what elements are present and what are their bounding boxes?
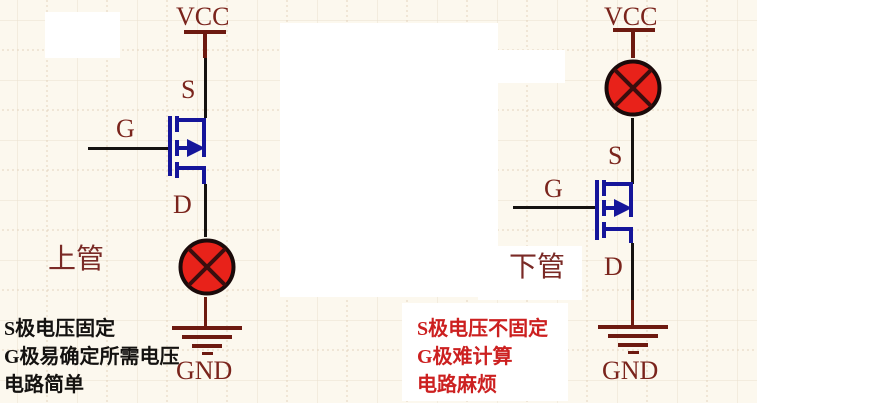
source-wire xyxy=(631,118,634,184)
ground-wire xyxy=(204,297,207,326)
gate-pin-label: G xyxy=(544,176,563,202)
ground-bar xyxy=(202,352,213,355)
ground-bar xyxy=(598,325,668,329)
gnd-label: GND xyxy=(602,358,658,384)
white-patch xyxy=(280,23,498,297)
gate-bar xyxy=(595,180,599,240)
bulk-stub xyxy=(179,146,187,150)
drain-wire xyxy=(631,243,634,300)
white-patch xyxy=(45,12,120,58)
gate-bar xyxy=(168,116,172,176)
channel-segment xyxy=(175,162,179,178)
ground-wire xyxy=(631,300,634,325)
lamp-icon xyxy=(177,237,237,297)
bulk-stub xyxy=(606,206,614,210)
drain-rail xyxy=(629,231,633,243)
drain-pin-label: D xyxy=(604,254,623,280)
drain-rail xyxy=(202,170,206,184)
ground-bar xyxy=(618,343,648,347)
white-patch xyxy=(497,50,565,83)
note-line: G极易确定所需电压 xyxy=(4,343,180,371)
note-line: 电路麻烦 xyxy=(417,371,548,399)
vcc-stem-wire xyxy=(203,33,207,58)
circuit-name-label: 下管 xyxy=(509,254,565,282)
vcc-label: VCC xyxy=(176,4,229,30)
ground-bar xyxy=(608,334,658,338)
circuit-notes: S极电压固定 G极易确定所需电压 电路简单 xyxy=(4,315,180,399)
source-pin-label: S xyxy=(608,143,622,169)
note-line: G极难计算 xyxy=(417,343,548,371)
vcc-label: VCC xyxy=(604,4,657,30)
ground-bar xyxy=(182,335,232,339)
ground-bar xyxy=(628,351,639,354)
gate-lead-wire xyxy=(88,147,170,150)
gate-pin-label: G xyxy=(116,116,135,142)
gnd-label: GND xyxy=(176,358,232,384)
drain-wire xyxy=(204,184,207,237)
note-line: S极电压不固定 xyxy=(417,315,548,343)
source-rail xyxy=(202,118,206,157)
ground-bar xyxy=(172,326,242,330)
schematic-canvas: VCC S G D xyxy=(0,0,878,403)
source-pin-label: S xyxy=(181,77,195,103)
gate-lead-wire xyxy=(513,206,597,209)
circuit-name-label: 上管 xyxy=(48,246,104,274)
source-wire xyxy=(204,58,207,118)
ground-bar xyxy=(192,344,222,348)
drain-pin-label: D xyxy=(173,192,192,218)
vcc-stem-wire xyxy=(631,31,635,58)
source-rail xyxy=(629,182,633,217)
circuit-notes: S极电压不固定 G极难计算 电路麻烦 xyxy=(417,315,548,399)
note-line: S极电压固定 xyxy=(4,315,180,343)
note-line: 电路简单 xyxy=(4,371,180,399)
lamp-icon xyxy=(603,58,663,118)
